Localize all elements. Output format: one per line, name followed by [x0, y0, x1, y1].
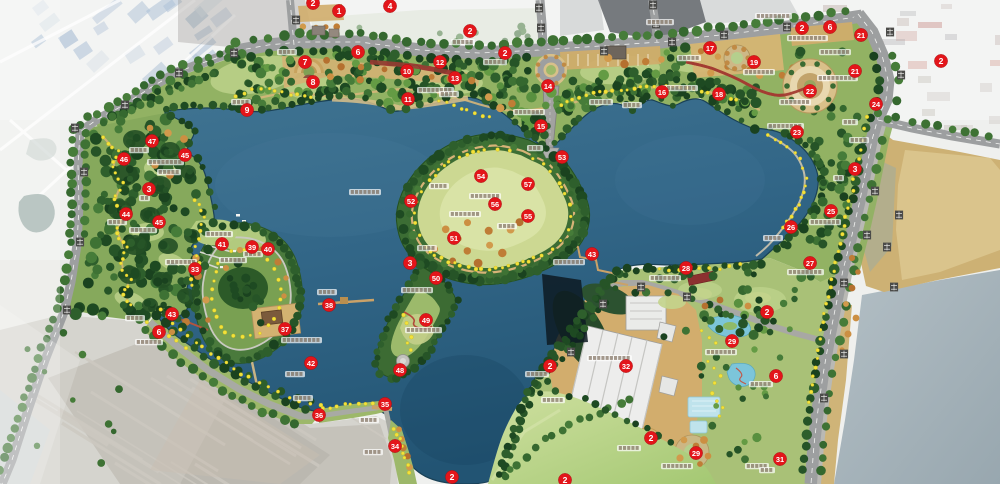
svg-text:31: 31 [776, 455, 784, 464]
svg-text:56: 56 [491, 200, 499, 209]
svg-text:2: 2 [450, 472, 455, 482]
svg-text:29: 29 [728, 337, 736, 346]
svg-text:45: 45 [155, 218, 163, 227]
svg-text:2: 2 [800, 23, 805, 33]
svg-text:48: 48 [396, 366, 404, 375]
svg-text:39: 39 [248, 243, 256, 252]
svg-text:21: 21 [851, 67, 859, 76]
svg-text:7: 7 [303, 57, 308, 67]
svg-text:28: 28 [682, 264, 690, 273]
svg-text:51: 51 [450, 234, 458, 243]
svg-text:40: 40 [264, 245, 272, 254]
svg-text:55: 55 [524, 212, 532, 221]
svg-text:10: 10 [403, 67, 411, 76]
svg-text:57: 57 [524, 180, 532, 189]
svg-text:6: 6 [774, 371, 779, 381]
svg-text:3: 3 [853, 164, 858, 174]
svg-text:33: 33 [191, 265, 199, 274]
svg-text:43: 43 [168, 310, 176, 319]
svg-text:29: 29 [692, 449, 700, 458]
svg-text:23: 23 [793, 128, 801, 137]
svg-text:1: 1 [337, 6, 342, 16]
svg-text:52: 52 [407, 197, 415, 206]
svg-text:14: 14 [544, 82, 553, 91]
svg-text:25: 25 [827, 207, 835, 216]
svg-text:16: 16 [658, 88, 666, 97]
svg-text:36: 36 [315, 411, 323, 420]
svg-text:43: 43 [588, 250, 596, 259]
svg-text:34: 34 [391, 442, 400, 451]
svg-text:12: 12 [436, 58, 444, 67]
svg-text:50: 50 [432, 274, 440, 283]
svg-text:2: 2 [649, 433, 654, 443]
svg-text:3: 3 [408, 258, 413, 268]
svg-text:3: 3 [147, 184, 152, 194]
svg-text:47: 47 [148, 137, 156, 146]
svg-text:6: 6 [828, 22, 833, 32]
svg-text:26: 26 [787, 223, 795, 232]
svg-text:2: 2 [765, 307, 770, 317]
svg-text:18: 18 [715, 90, 723, 99]
svg-text:6: 6 [157, 327, 162, 337]
svg-text:4: 4 [388, 1, 393, 11]
svg-text:2: 2 [468, 26, 473, 36]
svg-text:15: 15 [537, 122, 545, 131]
svg-text:38: 38 [325, 301, 333, 310]
svg-text:37: 37 [281, 325, 289, 334]
svg-text:2: 2 [503, 48, 508, 58]
svg-text:2: 2 [548, 361, 553, 371]
svg-text:22: 22 [806, 87, 814, 96]
svg-text:19: 19 [750, 58, 758, 67]
svg-text:27: 27 [806, 259, 814, 268]
svg-text:6: 6 [356, 47, 361, 57]
svg-text:2: 2 [563, 475, 568, 484]
svg-text:35: 35 [381, 400, 389, 409]
svg-text:9: 9 [245, 105, 250, 115]
svg-text:46: 46 [120, 155, 128, 164]
svg-text:32: 32 [622, 362, 630, 371]
svg-text:54: 54 [477, 172, 486, 181]
svg-text:42: 42 [307, 359, 315, 368]
svg-text:24: 24 [872, 100, 881, 109]
svg-text:2: 2 [939, 56, 944, 66]
svg-text:45: 45 [181, 151, 189, 160]
svg-text:41: 41 [218, 240, 226, 249]
svg-text:17: 17 [706, 44, 714, 53]
svg-text:49: 49 [422, 316, 430, 325]
svg-text:44: 44 [122, 210, 131, 219]
svg-text:13: 13 [451, 74, 459, 83]
svg-text:21: 21 [857, 31, 865, 40]
svg-text:2: 2 [311, 0, 316, 8]
svg-text:8: 8 [311, 77, 316, 87]
svg-text:11: 11 [404, 95, 412, 104]
svg-text:53: 53 [558, 153, 566, 162]
